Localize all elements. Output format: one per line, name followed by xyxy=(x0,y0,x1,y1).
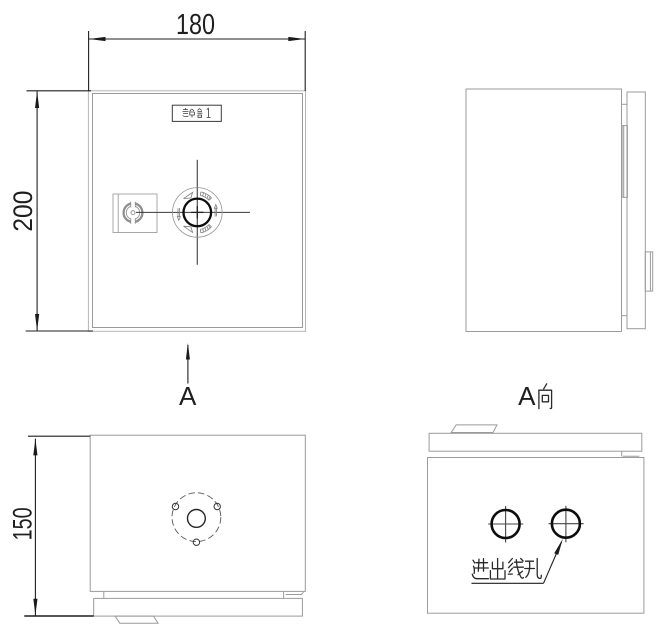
svg-text:A: A xyxy=(179,381,197,411)
svg-text:150: 150 xyxy=(7,507,37,540)
svg-text:A: A xyxy=(518,381,536,411)
svg-text:200: 200 xyxy=(8,191,38,232)
svg-text:180: 180 xyxy=(176,9,215,41)
